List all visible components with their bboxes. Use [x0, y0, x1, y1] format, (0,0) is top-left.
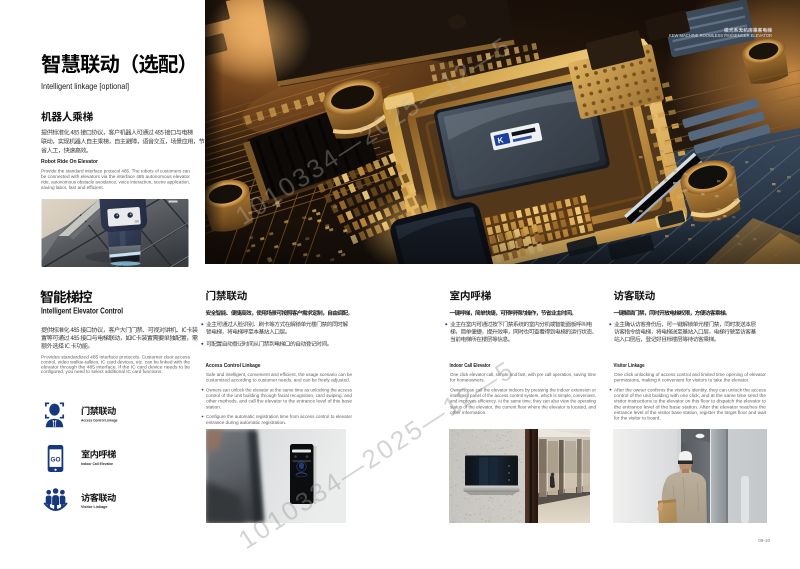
- svg-text:KEW MACHINE ROOMLESS PASSENGER: KEW MACHINE ROOMLESS PASSENGER ELEVATOR: [669, 33, 772, 38]
- svg-text:be connected with elevators vi: be connected with elevators via the inte…: [41, 174, 190, 179]
- svg-text:09-10: 09-10: [758, 538, 770, 543]
- svg-text:saving labor, fast and efficie: saving labor, fast and efficient.: [41, 185, 104, 190]
- svg-text:Intelligent linkage [optional]: Intelligent linkage [optional]: [41, 82, 129, 91]
- svg-text:customized according to custom: customized according to customer needs, …: [206, 378, 350, 383]
- svg-text:for the visitor to board.: for the visitor to board.: [614, 416, 661, 421]
- svg-text:GO: GO: [51, 457, 61, 464]
- svg-text:ride, autonomous obstacle avoi: ride, autonomous obstacle avoidance, voi…: [41, 180, 190, 185]
- svg-text:Safe and intelligent, convenie: Safe and intelligent, convenient and eff…: [206, 372, 352, 377]
- svg-text:Intelligent Elevator Control: Intelligent Elevator Control: [41, 306, 123, 316]
- svg-text:control of the unit building t: control of the unit building through fac…: [206, 393, 352, 398]
- svg-text:Indoor Call Elevator: Indoor Call Elevator: [81, 461, 113, 466]
- svg-text:station.: station.: [206, 404, 221, 409]
- svg-text:the entrance level of the base: the entrance level of the base station. …: [614, 404, 766, 409]
- svg-text:entrance during automatic regi: entrance during automatic registration.: [206, 420, 286, 425]
- svg-text:Access Control Linkage: Access Control Linkage: [81, 417, 118, 422]
- svg-text:Owners can unlock the elevator: Owners can unlock the elevator at the sa…: [206, 387, 353, 392]
- svg-text:Configure the automatic regist: Configure the automatic registration tim…: [206, 414, 352, 419]
- svg-text:configured, you need to select: configured, you need to select additiona…: [41, 369, 163, 374]
- svg-text:Visitor Linkage: Visitor Linkage: [81, 504, 108, 509]
- svg-text:visitor instructions to the el: visitor instructions to the elevator on …: [614, 399, 766, 404]
- svg-text:entrance level of the visitor: entrance level of the visitor base stati…: [614, 410, 767, 415]
- svg-text:Provide the standard interface: Provide the standard interface protocol …: [41, 168, 190, 173]
- svg-text:other methods, and call the el: other methods, and call the elevator to …: [206, 399, 352, 404]
- svg-text:control of the unit building w: control of the unit building with one cl…: [614, 393, 766, 398]
- svg-text:Access Control Linkage: Access Control Linkage: [206, 363, 261, 369]
- svg-text:After the owner confirms the v: After the owner confirms the visitor's i…: [614, 387, 767, 392]
- svg-text:One click unlocking of access: One click unlocking of access control an…: [614, 372, 766, 377]
- svg-text:Robot Ride On Elevator: Robot Ride On Elevator: [41, 159, 98, 165]
- svg-text:permissions, making it conveni: permissions, making it convenient for vi…: [614, 378, 749, 383]
- svg-text:Visitor Linkage: Visitor Linkage: [614, 363, 645, 369]
